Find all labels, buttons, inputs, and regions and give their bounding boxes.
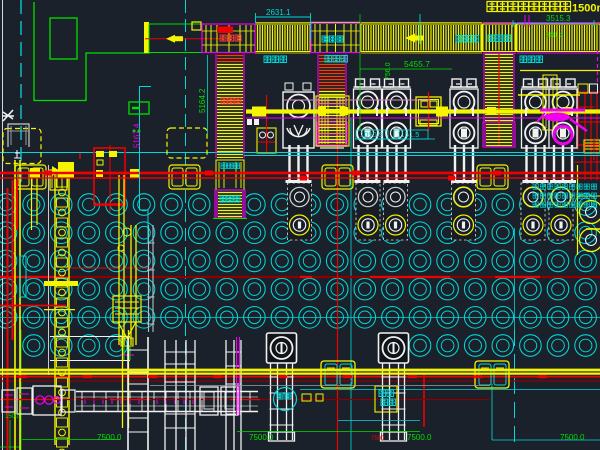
svg-text:756.0: 756.0 bbox=[385, 62, 392, 80]
svg-text:1500m: 1500m bbox=[572, 3, 600, 15]
svg-text:7500: 7500 bbox=[371, 436, 385, 442]
svg-text:5455.7: 5455.7 bbox=[404, 59, 430, 69]
svg-text:5167.4: 5167.4 bbox=[133, 123, 142, 148]
svg-text:1050.9: 1050.9 bbox=[360, 130, 383, 139]
svg-text:3515.3: 3515.3 bbox=[546, 14, 571, 23]
svg-text:7500.0: 7500.0 bbox=[407, 433, 432, 442]
svg-text:2N1.2: 2N1.2 bbox=[546, 32, 564, 39]
svg-text:7500.0: 7500.0 bbox=[560, 433, 585, 442]
svg-text:7500.0: 7500.0 bbox=[97, 433, 122, 442]
svg-text:5164.2: 5164.2 bbox=[198, 88, 207, 113]
svg-text:7500.0: 7500.0 bbox=[249, 433, 274, 442]
svg-text:2631.1: 2631.1 bbox=[266, 8, 291, 17]
svg-text:1500: 1500 bbox=[5, 414, 19, 420]
svg-text:1151.5: 1151.5 bbox=[397, 130, 419, 139]
